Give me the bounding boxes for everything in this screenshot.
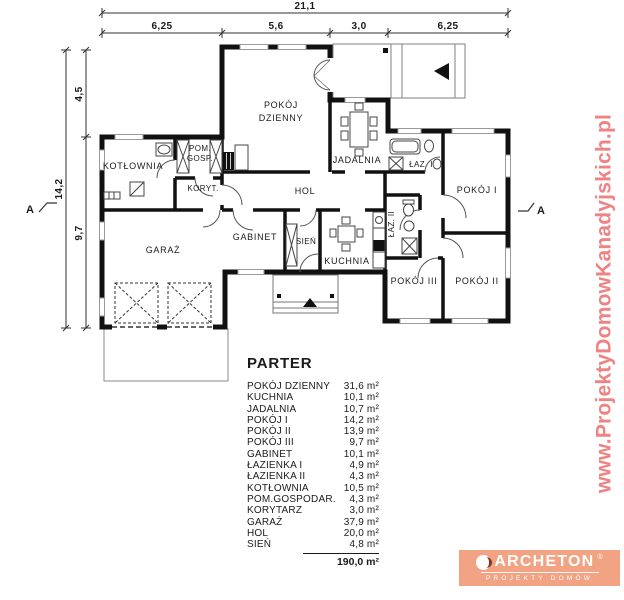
section-marker-right: A: [518, 203, 545, 217]
logo-tagline: PROJEKTY DOMÓW: [481, 572, 599, 582]
dim-top-seg-2: 5,6: [268, 21, 283, 32]
archeton-shell-icon: [476, 555, 491, 570]
table-row: JADALNIA10,7 m²: [247, 404, 379, 415]
dim-top-seg-3: 3,0: [351, 21, 366, 32]
registered-mark: ®: [597, 554, 602, 561]
table-row: ŁAZIENKA I4,9 m²: [247, 460, 379, 471]
section-marker-right-label: A: [537, 205, 545, 217]
bathroom2-fixtures: [402, 200, 417, 254]
room-label-pokoj-dzienny-2: DZIENNY: [259, 113, 303, 123]
living-cabinet: [235, 145, 248, 170]
room-label-gabinet: GABINET: [233, 232, 277, 242]
room-label-hol: HOL: [295, 186, 316, 196]
kitchen-counter: [373, 212, 385, 268]
fireplace: [223, 152, 234, 170]
section-marker-left: A: [26, 203, 57, 216]
dim-top-seg-4: 6,25: [437, 21, 458, 32]
room-label-kotlownia: KOTŁOWNIA: [103, 161, 163, 171]
floor-plan-page: 21,1 6,25 5,6 3,0 6,25 14,2 4,5 9,7 A A: [0, 0, 624, 600]
dining-table: [341, 103, 377, 156]
table-row: ŁAZIENKA II4,3 m²: [247, 471, 379, 482]
dim-top-seg-1: 6,25: [151, 21, 172, 32]
room-label-pokoj-dzienny-1: POKÓJ: [264, 100, 298, 110]
room-label-laz2: ŁAZ. II: [387, 211, 396, 237]
utility-sink: [156, 143, 172, 156]
table-row: KUCHNIA10,1 m²: [247, 392, 379, 403]
dim-top-total: 21,1: [294, 1, 315, 12]
area-rows: POKÓJ DZIENNY31,6 m² KUCHNIA10,1 m² JADA…: [247, 381, 379, 550]
total-area: 190,0 m²: [303, 553, 379, 568]
table-row: KORYTARZ3,0 m²: [247, 505, 379, 516]
room-label-garaz: GARAŻ: [146, 245, 181, 255]
watermark-url: www.ProjektyDomowKanadyjskich.pl: [593, 59, 618, 549]
room-label-jadalnia: JADALNIA: [333, 155, 382, 165]
terrace: [333, 44, 465, 98]
room-label-pom-gosp-2: GOSP.: [187, 154, 213, 163]
dim-left-total: 14,2: [54, 178, 65, 199]
table-row: POKÓJ DZIENNY31,6 m²: [247, 381, 379, 392]
table-row: GABINET10,1 m²: [247, 449, 379, 460]
room-label-pom-gosp-1: POM.: [189, 144, 211, 153]
dim-left-seg-1: 4,5: [74, 86, 85, 101]
section-marker-left-label: A: [26, 204, 34, 216]
logo-name: ARCHETON: [494, 554, 594, 570]
kitchen-table: [330, 217, 363, 251]
terrace-post: [383, 48, 388, 53]
table-row: POKÓJ I14,2 m²: [247, 415, 379, 426]
dim-left-seg-2: 9,7: [74, 225, 85, 240]
archeton-logo: ARCHETON ® PROJEKTY DOMÓW: [459, 550, 620, 586]
table-row: POKÓJ II13,9 m²: [247, 426, 379, 437]
total-row: 190,0 m²: [247, 553, 379, 568]
area-table: PARTER POKÓJ DZIENNY31,6 m² KUCHNIA10,1 …: [247, 355, 379, 568]
entrance-porch: [273, 275, 338, 313]
table-row: POM.GOSPODAR.4,3 m²: [247, 494, 379, 505]
room-label-pokoj3: POKÓJ III: [391, 276, 438, 286]
table-row: POKÓJ III9,7 m²: [247, 437, 379, 448]
boiler: [130, 182, 144, 196]
room-label-laz1: ŁAZ. I: [409, 160, 433, 169]
room-label-koryt: KORYT.: [187, 184, 218, 193]
radiator: [104, 192, 120, 199]
room-label-sien: SIEŃ: [296, 237, 316, 246]
floor-title: PARTER: [247, 355, 379, 372]
table-row: GARAŻ37,9 m²: [247, 517, 379, 528]
room-label-pokoj2: POKÓJ II: [455, 276, 499, 286]
room-label-pokoj1: POKÓJ I: [457, 185, 497, 195]
table-row: SIEŃ4,8 m²: [247, 539, 379, 550]
garage-parking-spots: [115, 283, 211, 323]
table-row: KOTŁOWNIA10,5 m²: [247, 483, 379, 494]
table-row: HOL20,0 m²: [247, 528, 379, 539]
room-label-kuchnia: KUCHNIA: [324, 256, 369, 266]
driveway: [104, 329, 228, 381]
